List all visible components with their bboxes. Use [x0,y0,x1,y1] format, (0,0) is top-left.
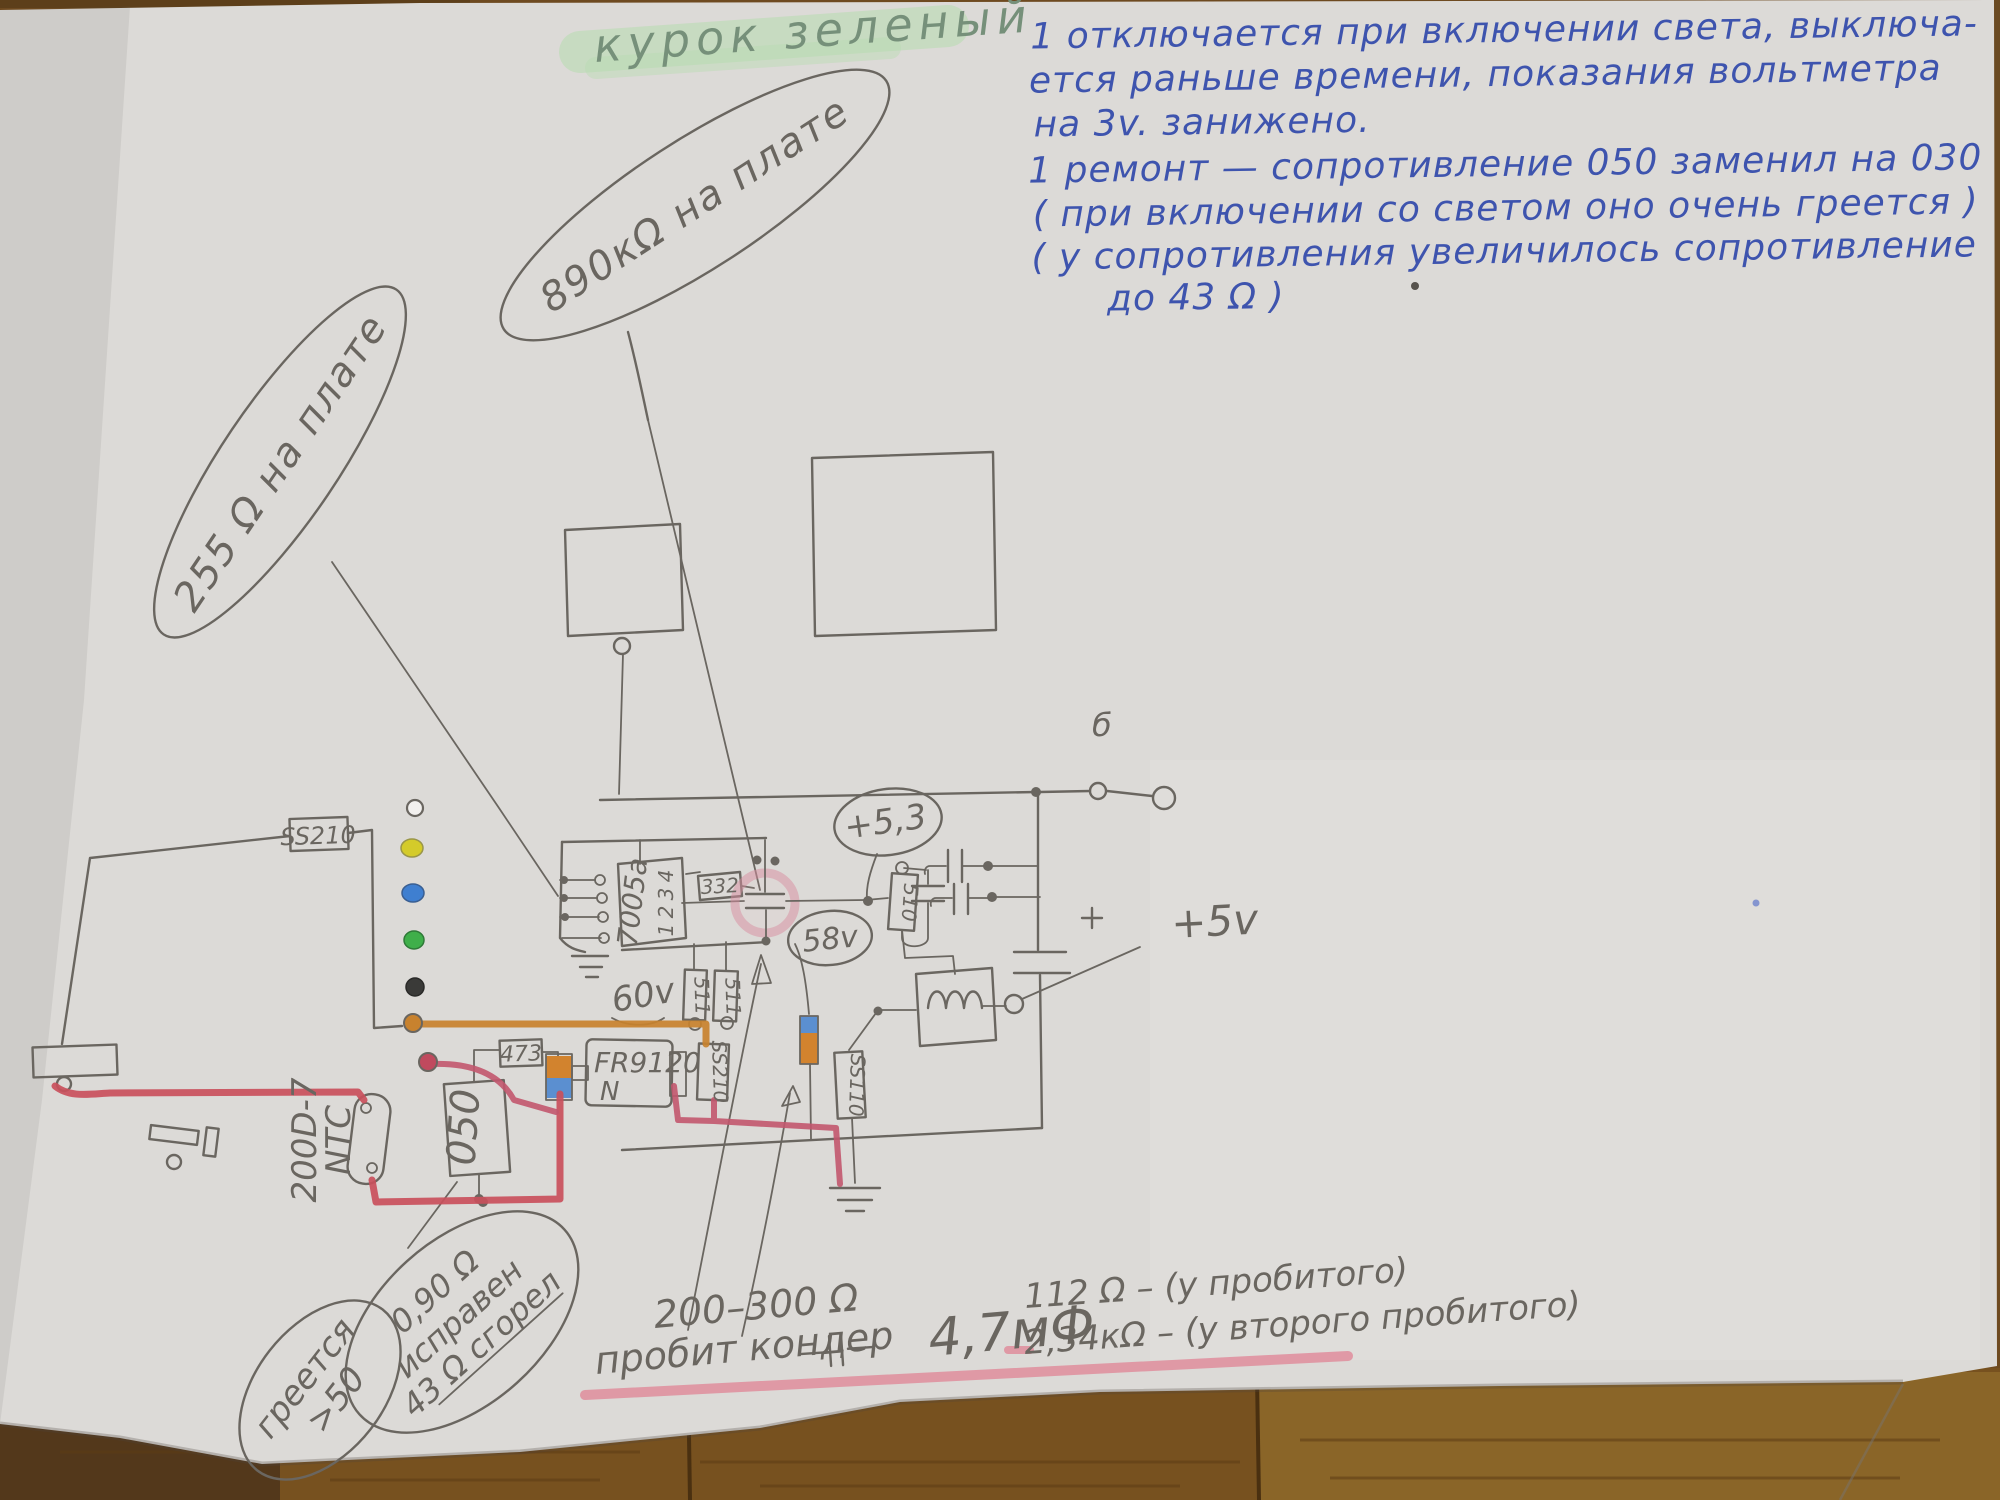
component-orange-band [546,1056,572,1078]
blue-ink-speck [1753,900,1760,907]
led-dot-yellow [401,839,423,857]
label-pin3: 3 [654,888,678,901]
note-line-7: до 43 Ω ) [1106,276,1285,319]
label-ss110: SS110 [844,1053,870,1117]
label-fr9120-n: N [600,1077,619,1107]
junction-dot [753,856,762,865]
label-ntc: NTC [319,1105,359,1175]
junction-dot [560,876,568,884]
paper-speck [1411,282,1419,290]
label-ss210-mid: SS210 [707,1040,733,1104]
label-plus5v: +5v [1170,894,1260,948]
contact-dot-crimson [419,1053,437,1071]
junction-dot [987,892,997,902]
label-050: 050 [438,1087,489,1166]
photo-of-hand-drawn-schematic: курок зеленый 1 отключается при включени… [0,0,2000,1500]
label-473: 473 [500,1041,543,1067]
contact-dot-orange [404,1014,422,1032]
led-dot-black [406,978,424,996]
label-58v: 58v [801,919,862,960]
label-pin1: 1 [654,924,678,937]
junction-dot [762,937,771,946]
note-line-3: на 3v. занижено. [1033,100,1370,146]
label-point-b: б [1092,706,1112,744]
junction-dot [561,913,569,921]
junction-dot [771,857,780,866]
label-511a: 511 [689,976,714,1015]
junction-dot [560,894,568,902]
label-pin2: 2 [654,906,678,919]
label-510: 510 [897,883,924,923]
label-ss210-left: SS210 [280,821,356,852]
led-dot-green [404,931,424,949]
junction-dot [863,896,873,906]
wire [786,900,866,901]
wire [765,840,766,941]
label-pin4: 4 [654,870,678,883]
led-dot-blue [402,884,424,902]
label-332: 332 [700,873,739,899]
label-fr9120: FR9120 [594,1046,701,1079]
led-dot-white [407,800,423,816]
component-orange-band [800,1033,818,1064]
component-blue-band [800,1016,818,1033]
label-511b: 511 [720,977,745,1016]
junction-dot [874,1007,883,1016]
junction-dot [983,861,993,871]
wood-plank-light [1258,1372,2000,1500]
junction-dot [1031,787,1041,797]
plank-joint [1257,1376,1259,1500]
